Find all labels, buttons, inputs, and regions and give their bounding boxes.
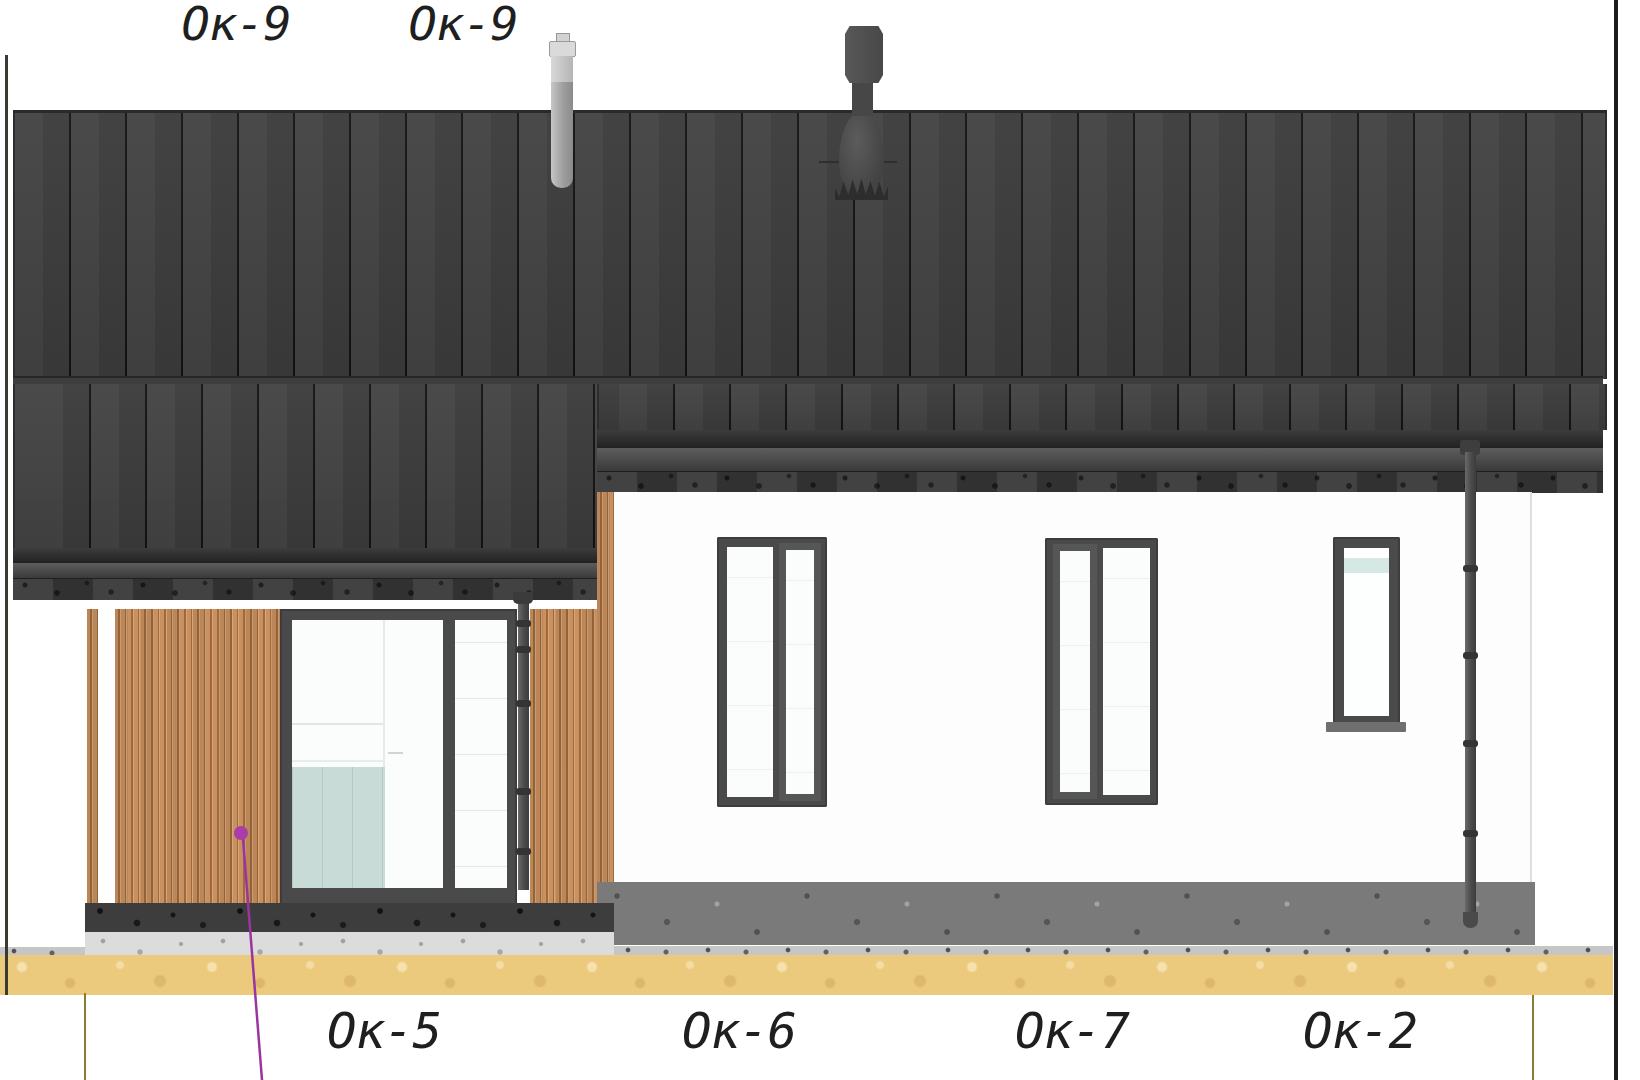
- window-ok2-glass: [1344, 548, 1389, 716]
- pipe-bracket: [516, 848, 531, 855]
- mark-label-ok7: Ок-7: [1015, 1003, 1129, 1060]
- wood-cladding-left: [115, 609, 280, 903]
- mark-label-ok5: Ок-5: [327, 1003, 441, 1060]
- roof-upper-panels: [13, 110, 1607, 379]
- pipe-bracket: [516, 620, 531, 627]
- window-ok7-fixed-pane: [1103, 548, 1150, 795]
- pipe-bracket: [516, 788, 531, 795]
- window-ok2: [1333, 537, 1400, 727]
- vent-pipe-upper: [551, 56, 573, 82]
- window-ok6: [717, 537, 827, 807]
- wall-downpipe: [1465, 452, 1476, 924]
- chimney-vent-neck: [852, 81, 873, 116]
- mark-label-ok9-1: Ок-9: [181, 0, 290, 51]
- mark-label-ok9-2: Ок-9: [408, 0, 517, 51]
- pipe-coupling: [1463, 565, 1478, 572]
- door-glass-main-pane: [292, 620, 443, 888]
- porch-downpipe: [518, 600, 529, 890]
- wood-cladding-corner: [597, 492, 614, 882]
- pipe-coupling: [1463, 740, 1478, 747]
- porch-soffit: [13, 600, 597, 609]
- sliding-glass-door: [280, 609, 517, 905]
- door-handle: [388, 752, 403, 754]
- window-ok6-fixed-pane: [727, 547, 773, 797]
- fascia-porch: [13, 578, 597, 601]
- chimney-vent-cap: [845, 26, 883, 83]
- window-ok6-sash: [779, 543, 821, 801]
- interior-counter-line: [292, 723, 383, 725]
- pipe-coupling: [1463, 830, 1478, 837]
- wood-cladding-right: [530, 609, 597, 903]
- roof-drip-edge-right: [597, 430, 1603, 447]
- window-ok7: [1045, 538, 1158, 805]
- interior-teal-cabinet: [292, 767, 385, 888]
- window-ok2-sill: [1326, 722, 1406, 732]
- pipe-coupling: [1463, 652, 1478, 659]
- roof-lower-panels-left: [13, 384, 601, 548]
- porch-downpipe-elbow: [513, 592, 533, 604]
- plinth-main: [597, 882, 1535, 945]
- extension-line-left: [84, 993, 86, 1080]
- downpipe-shoe: [1463, 912, 1478, 928]
- extension-line-right: [1532, 995, 1534, 1080]
- pipe-bracket: [516, 700, 531, 707]
- roof-lower-panels-right: [597, 384, 1607, 430]
- pipe-bracket: [516, 646, 531, 653]
- gutter-right: [597, 447, 1603, 472]
- vent-pipe-cap: [549, 41, 576, 57]
- window-ok7-sash: [1053, 544, 1097, 799]
- drawing-extent-line-left: [5, 55, 8, 995]
- ground-sand-band: [0, 955, 1613, 995]
- mark-label-ok2: Ок-2: [1303, 1003, 1417, 1060]
- door-glass-side-pane: [455, 620, 507, 888]
- interior-counter-line-2: [292, 760, 383, 762]
- mark-label-ok6: Ок-6: [682, 1003, 796, 1060]
- grade-line-left: [0, 947, 85, 955]
- fascia-right: [597, 471, 1603, 493]
- roof-drip-edge-porch: [13, 548, 597, 562]
- plinth-porch: [85, 903, 614, 932]
- elevation-drawing: Ок-9 Ок-9 Ок-5 Ок-6 Ок-7 Ок-2: [0, 0, 1640, 1080]
- gutter-porch: [13, 562, 597, 579]
- wood-cladding-strip: [87, 609, 98, 903]
- drawing-extent-line-right: [1614, 0, 1618, 1080]
